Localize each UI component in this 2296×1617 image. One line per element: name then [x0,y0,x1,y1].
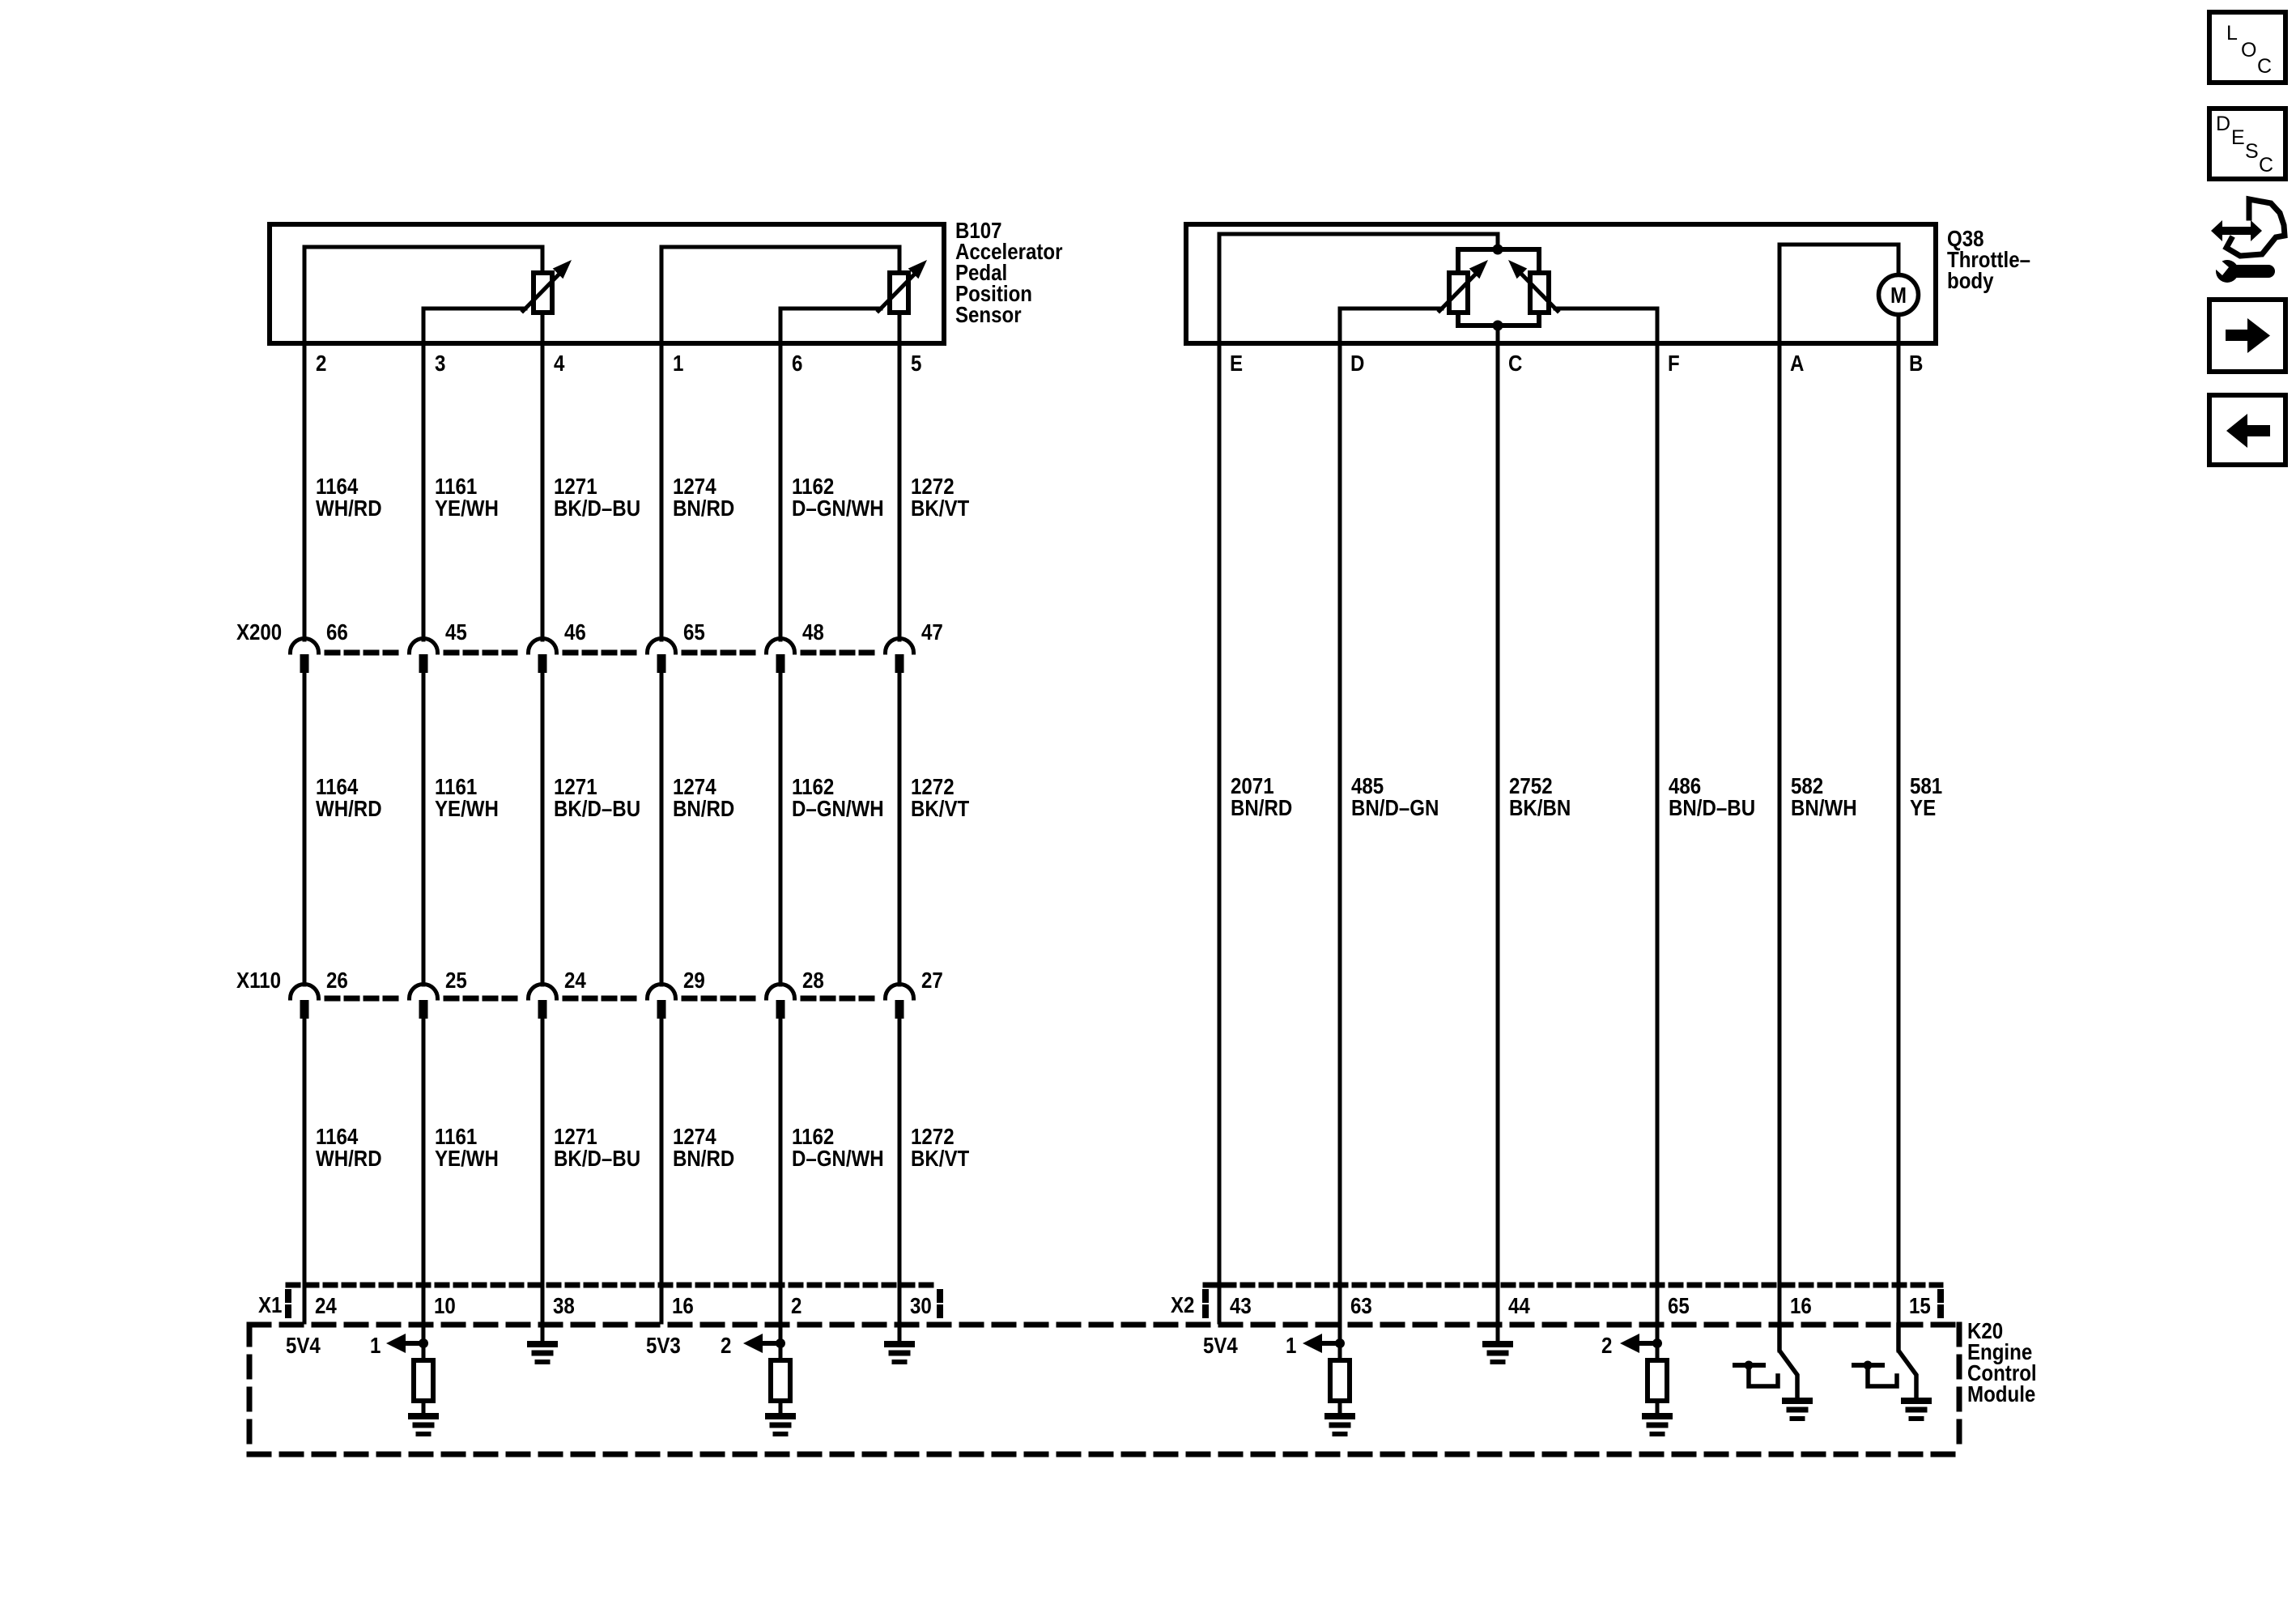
svg-text:C: C [2257,55,2272,78]
svg-text:C: C [2259,154,2273,177]
svg-text:BN/RD: BN/RD [673,1146,734,1171]
svg-text:WH/RD: WH/RD [316,796,382,821]
svg-text:BK/BN: BK/BN [1509,795,1571,820]
svg-text:E: E [2231,126,2245,149]
svg-text:BK/D–BU: BK/D–BU [554,1146,640,1171]
svg-text:5: 5 [911,351,921,376]
svg-text:BK/VT: BK/VT [911,796,969,821]
svg-text:47: 47 [921,619,943,645]
svg-text:A: A [1790,351,1804,376]
svg-text:M: M [1890,283,1907,308]
svg-text:46: 46 [564,619,586,645]
svg-text:X110: X110 [236,968,281,993]
svg-text:WH/RD: WH/RD [316,496,382,521]
svg-text:D–GN/WH: D–GN/WH [792,796,884,821]
svg-text:L: L [2226,22,2238,45]
svg-text:E: E [1230,351,1243,376]
svg-text:5V4: 5V4 [1203,1333,1238,1358]
svg-text:BN/D–GN: BN/D–GN [1351,795,1439,820]
svg-text:16: 16 [672,1293,694,1318]
svg-text:5V3: 5V3 [646,1333,681,1358]
svg-text:Module: Module [1967,1381,2035,1406]
svg-text:BN/WH: BN/WH [1791,795,1857,820]
svg-text:C: C [1508,351,1522,376]
svg-text:15: 15 [1909,1293,1931,1318]
svg-text:28: 28 [802,968,824,993]
svg-text:2: 2 [1601,1333,1612,1358]
svg-text:66: 66 [326,619,348,645]
svg-text:BN/RD: BN/RD [673,796,734,821]
svg-text:BK/D–BU: BK/D–BU [554,796,640,821]
svg-text:YE: YE [1910,795,1936,820]
svg-text:2: 2 [721,1333,731,1358]
svg-text:10: 10 [434,1293,456,1318]
svg-text:D: D [1350,351,1364,376]
svg-text:D: D [2216,113,2230,135]
svg-text:S: S [2245,140,2259,163]
svg-text:48: 48 [802,619,824,645]
svg-text:2: 2 [316,351,326,376]
svg-text:D–GN/WH: D–GN/WH [792,496,884,521]
svg-text:BK/VT: BK/VT [911,1146,969,1171]
svg-text:4: 4 [554,351,565,376]
svg-text:X1: X1 [258,1292,282,1317]
svg-text:BN/RD: BN/RD [1231,795,1292,820]
svg-text:D–GN/WH: D–GN/WH [792,1146,884,1171]
svg-text:BN/D–BU: BN/D–BU [1669,795,1755,820]
svg-text:3: 3 [435,351,445,376]
svg-text:X2: X2 [1171,1292,1194,1317]
svg-text:65: 65 [683,619,705,645]
svg-text:44: 44 [1508,1293,1530,1318]
svg-text:YE/WH: YE/WH [435,496,499,521]
svg-text:YE/WH: YE/WH [435,1146,499,1171]
svg-text:29: 29 [683,968,705,993]
svg-text:16: 16 [1790,1293,1812,1318]
svg-text:body: body [1947,268,1994,293]
svg-text:O: O [2241,39,2256,62]
svg-text:25: 25 [445,968,467,993]
svg-text:45: 45 [445,619,467,645]
svg-text:B: B [1909,351,1923,376]
svg-text:38: 38 [553,1293,575,1318]
svg-text:Sensor: Sensor [955,302,1022,327]
svg-text:65: 65 [1668,1293,1690,1318]
svg-text:BK/VT: BK/VT [911,496,969,521]
svg-text:1: 1 [1286,1333,1296,1358]
svg-text:BK/D–BU: BK/D–BU [554,496,640,521]
svg-text:WH/RD: WH/RD [316,1146,382,1171]
svg-text:24: 24 [315,1293,337,1318]
svg-text:26: 26 [326,968,348,993]
svg-text:63: 63 [1350,1293,1372,1318]
svg-text:27: 27 [921,968,943,993]
svg-text:X200: X200 [236,619,282,645]
svg-text:43: 43 [1230,1293,1252,1318]
svg-text:1: 1 [673,351,683,376]
svg-text:1: 1 [370,1333,381,1358]
svg-text:5V4: 5V4 [286,1333,321,1358]
svg-text:2: 2 [791,1293,801,1318]
svg-text:6: 6 [792,351,802,376]
svg-text:30: 30 [910,1293,932,1318]
svg-text:YE/WH: YE/WH [435,796,499,821]
svg-text:BN/RD: BN/RD [673,496,734,521]
svg-text:24: 24 [564,968,586,993]
svg-text:F: F [1668,351,1680,376]
